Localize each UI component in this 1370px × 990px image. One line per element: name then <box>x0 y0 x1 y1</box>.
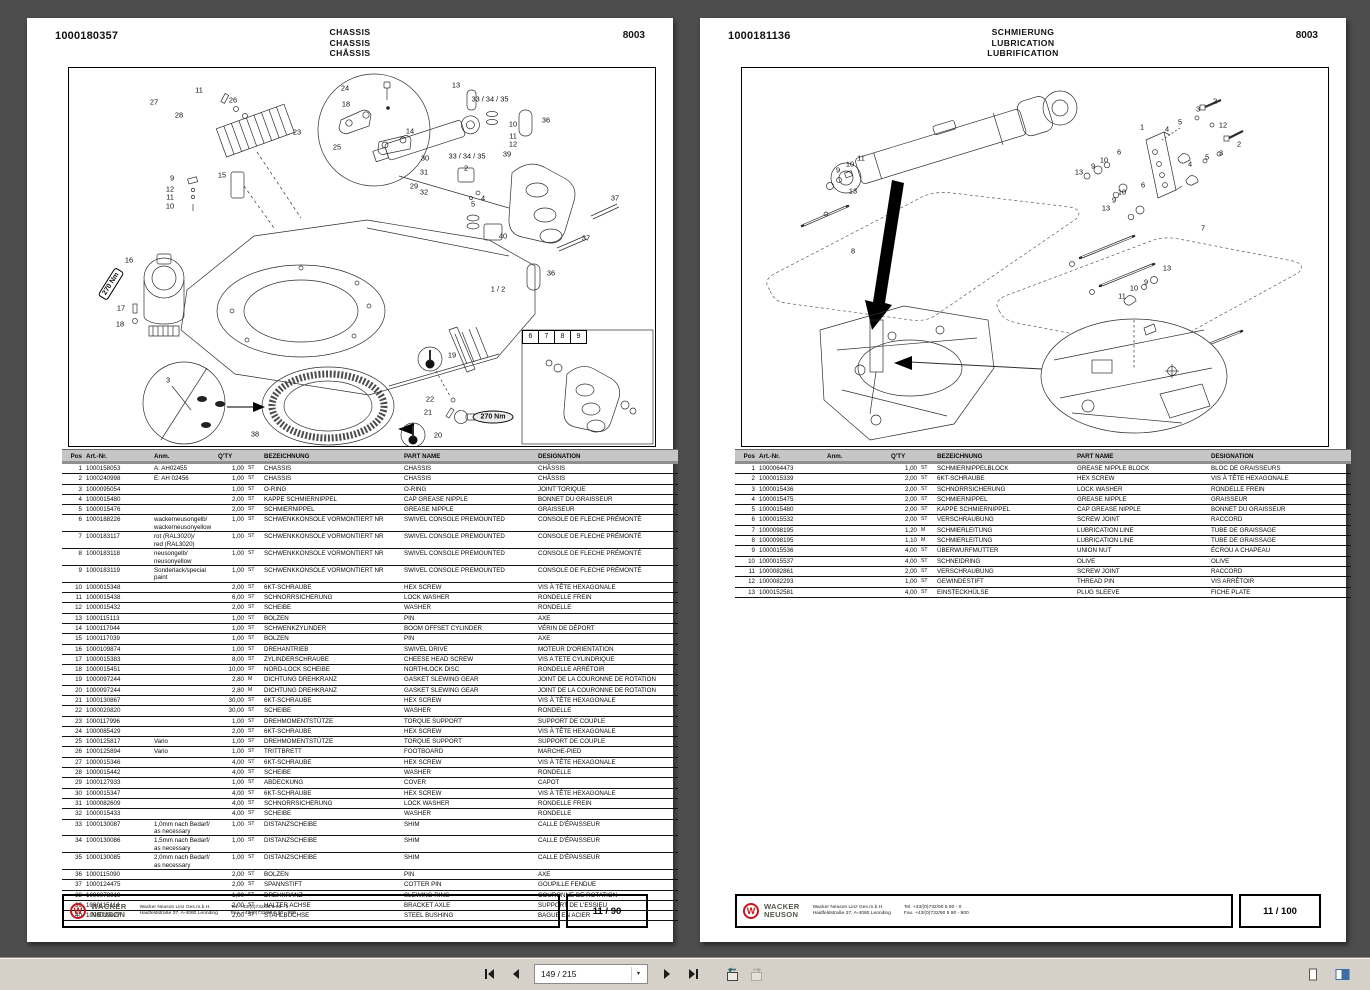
cell-bez: TRITTBRETT <box>262 747 402 755</box>
cell-art: 1000015476 <box>84 505 152 513</box>
cell-part: COVER <box>402 778 536 786</box>
cell-qty: 4,00 <box>216 799 246 807</box>
table-row: 1210000154322,00STSCHEIBEWASHERRONDELLE <box>62 603 678 613</box>
cell-qty: 1,00 <box>216 737 246 745</box>
cell-bez: DREHMOMENTSTÜTZE <box>262 717 402 725</box>
cell-unit: ST <box>919 474 935 482</box>
cell-des: CHÂSSIS <box>536 464 678 472</box>
cell-art: 1000015532 <box>757 515 825 523</box>
table-row: 610000155322,00STVERSCHRAUBUNGSCREW JOIN… <box>735 515 1351 525</box>
cell-unit: ST <box>919 505 935 513</box>
cell-des: OLIVE <box>1209 557 1351 565</box>
cell-asm: rot (RAL3020)/ red (RAL3020) <box>152 532 216 548</box>
cell-des: RONDELLE FREIN <box>536 799 678 807</box>
cell-part: WASHER <box>402 603 536 611</box>
previous-page-button[interactable] <box>504 963 527 986</box>
cell-qty: 4,00 <box>889 546 919 554</box>
cell-art: 1000015339 <box>757 474 825 482</box>
callout-label: 8 <box>851 247 855 254</box>
col-anm: Anm. <box>152 451 216 460</box>
cell-asm <box>152 758 216 759</box>
cell-unit: ST <box>919 464 935 472</box>
table-row: 1010000155374,00STSCHNEIDRINGOLIVEOLIVE <box>735 557 1351 567</box>
cell-pos: 23 <box>62 717 84 725</box>
cell-unit: ST <box>246 737 262 745</box>
page-title: SCHMIERUNG LUBRICATION LUBRIFICATION <box>700 27 1346 59</box>
cell-bez: CHASSIS <box>262 464 402 472</box>
cell-art: 1000015438 <box>84 593 152 601</box>
cell-bez: SPANNSTIFT <box>262 880 402 888</box>
cell-pos: 20 <box>62 686 84 694</box>
cell-unit: ST <box>246 495 262 503</box>
cell-unit: ST <box>246 789 262 797</box>
cell-bez: SCHMIERLEITUNG <box>935 536 1075 544</box>
cell-des: RONDELLE FREIN <box>536 593 678 601</box>
cell-qty: 2,80 <box>216 675 246 683</box>
previous-view-icon <box>723 967 740 982</box>
cell-asm <box>152 645 216 646</box>
cell-part: GREASE NIPPLE BLOCK <box>1075 464 1209 472</box>
cell-art: 1000015348 <box>84 583 152 591</box>
table-row: 1510001170391,00STBOLZENPINAXE <box>62 634 678 644</box>
cell-art: 1000015442 <box>84 768 152 776</box>
cell-part: LUBRICATION LINE <box>1075 526 1209 534</box>
cell-unit: ST <box>246 809 262 817</box>
cell-qty: 2,00 <box>216 880 246 888</box>
cell-pos: 34 <box>62 836 84 844</box>
left-page: 1000180357 CHASSIS CHASSIS CHÂSSIS 8003 <box>27 18 673 942</box>
cell-art: 1000117039 <box>84 634 152 642</box>
callout-label: 7 <box>1201 224 1205 231</box>
cell-bez: NORD-LOCK SCHEIBE <box>262 665 402 673</box>
cell-bez: DISTANZSCHEIBE <box>262 853 402 861</box>
col-pos: Pos <box>735 451 757 460</box>
table-row: 1710000153838,00STZYLINDERSCHRAUBECHEESE… <box>62 655 678 665</box>
table-row: 3710001244752,00STSPANNSTIFTCOTTER PINGO… <box>62 880 678 890</box>
cell-des: CAPOT <box>536 778 678 786</box>
table-row: 3010000153474,00ST6KT-SCHRAUBEHEX SCREWV… <box>62 789 678 799</box>
cell-qty: 2,00 <box>216 583 246 591</box>
cell-des: RONDELLE <box>536 768 678 776</box>
cell-pos: 11 <box>735 567 757 575</box>
table-row: 810000981951,10MSCHMIERLEITUNGLUBRICATIO… <box>735 536 1351 546</box>
cell-bez: ZYLINDERSCHRAUBE <box>262 655 402 663</box>
cell-part: SWIVEL CONSOLE PREMOUNTED <box>402 566 536 574</box>
cell-bez: SCHWENKKONSOLE VORMONTIERT NR <box>262 515 402 523</box>
cell-asm <box>152 789 216 790</box>
callout-label: 10 <box>1118 188 1126 195</box>
cell-pos: 2 <box>735 474 757 482</box>
cell-art: 1000015537 <box>757 557 825 565</box>
cell-pos: 24 <box>62 727 84 735</box>
cell-part: HEX SCREW <box>402 696 536 704</box>
cell-des: RONDELLE ARRÉTOIR <box>536 665 678 673</box>
cell-qty: 1,00 <box>216 464 246 472</box>
cell-des: BONNET DU GRAISSEUR <box>1209 505 1351 513</box>
cell-unit: M <box>919 536 935 544</box>
cell-bez: KAPPE SCHMIERNIPPEL <box>262 495 402 503</box>
cell-qty: 1,00 <box>889 464 919 472</box>
cell-qty: 1,00 <box>216 717 246 725</box>
company-address: Wacker Neuson Linz Ges.m.b.H. Haidfeldst… <box>813 905 891 917</box>
cell-bez: GEWINDESTIFT <box>935 577 1075 585</box>
callout-label: 21 <box>424 408 432 415</box>
callout-label: 9 <box>1144 278 1148 285</box>
cell-bez: VERSCHRAUBUNG <box>935 567 1075 575</box>
callout-label: 3 <box>1219 149 1223 156</box>
page-navigation-group: 149 / 215 ▼ <box>478 958 769 990</box>
page-dropdown-arrow-icon[interactable]: ▼ <box>631 967 645 981</box>
cell-art: 1000064473 <box>757 464 825 472</box>
previous-view-button[interactable] <box>720 963 743 986</box>
cell-des: CALLE D'ÉPAISSEUR <box>536 853 678 861</box>
cell-asm: wackerneusongelb/ wackerneusonyellow <box>152 515 216 531</box>
cell-art: 1000015451 <box>84 665 152 673</box>
cell-pos: 7 <box>735 526 757 534</box>
cell-bez: SCHEIBE <box>262 768 402 776</box>
callout-label: 9 <box>570 330 587 344</box>
cell-art: 1000109874 <box>84 645 152 653</box>
next-page-button[interactable] <box>655 963 678 986</box>
cell-art: 1000152581 <box>757 588 825 596</box>
page-number: 11 / 100 <box>1239 894 1321 928</box>
cell-art: 1000115090 <box>84 870 152 878</box>
table-row: 2410000854292,00ST6KT-SCHRAUBEHEX SCREWV… <box>62 727 678 737</box>
col-part: PART NAME <box>402 451 536 460</box>
cell-part: LOCK WASHER <box>402 799 536 807</box>
cell-part: CHEESE HEAD SCREW <box>402 655 536 663</box>
cell-qty: 30,00 <box>216 696 246 704</box>
cell-part: HEX SCREW <box>402 758 536 766</box>
cell-unit: ST <box>246 727 262 735</box>
wacker-neuson-logo-icon: W <box>70 903 86 919</box>
table-row: 3110000826094,00STSCHNORRSICHERUNGLOCK W… <box>62 799 678 809</box>
cell-asm <box>825 536 889 537</box>
cell-asm: E: AH 02456 <box>152 474 216 482</box>
cell-unit: M <box>919 526 935 534</box>
cell-art: 1000130867 <box>84 696 152 704</box>
cell-des: CONSOLE DE FLECHE PRÉMONTÉ <box>536 532 678 540</box>
callout-label: 4 <box>1165 125 1169 132</box>
cell-qty: 2,00 <box>889 474 919 482</box>
cell-art: 1000183118 <box>84 549 152 557</box>
col-anm: Anm. <box>825 451 889 460</box>
cell-art: 1000130085 <box>84 853 152 861</box>
cell-bez: 6KT-SCHRAUBE <box>262 789 402 797</box>
cell-part: SHIM <box>402 853 536 861</box>
cell-unit: ST <box>246 820 262 828</box>
title-line-fr: CHÂSSIS <box>27 48 673 59</box>
table-row: 1210000822931,00STGEWINDESTIFTTHREAD PIN… <box>735 577 1351 587</box>
callout-label: 7 <box>538 330 555 344</box>
callout-label: 6 <box>1117 148 1121 155</box>
cell-pos: 5 <box>62 505 84 513</box>
table-row: 1110000828612,00STVERSCHRAUBUNGSCREW JOI… <box>735 567 1351 577</box>
cell-asm <box>152 880 216 881</box>
exploded-view-drawing <box>742 68 1328 446</box>
table-header-row: Pos Art.-Nr. Anm. Q'TY BEZEICHNUNG PART … <box>62 449 678 464</box>
cell-part: SCREW JOINT <box>1075 567 1209 575</box>
table-body: 11000158053A: AH024551,00STCHASSISCHASSI… <box>62 464 678 921</box>
cell-unit: ST <box>246 474 262 482</box>
page-footer: W WACKER NEUSON Wacker Neuson Linz Ges.m… <box>735 894 1321 928</box>
cell-des: TUBE DE GRAISSAGE <box>1209 526 1351 534</box>
cell-des: RONDELLE <box>536 706 678 714</box>
table-row: 2710000153464,00ST6KT-SCHRAUBEHEX SCREWV… <box>62 758 678 768</box>
cell-pos: 35 <box>62 853 84 861</box>
cell-art: 1000117044 <box>84 624 152 632</box>
parts-table: Pos Art.-Nr. Anm. Q'TY BEZEICHNUNG PART … <box>735 449 1351 598</box>
cell-part: SWIVEL CONSOLE PREMOUNTED <box>402 532 536 540</box>
cell-pos: 1 <box>62 464 84 472</box>
cell-qty: 1,10 <box>889 536 919 544</box>
cell-part: SCREW JOINT <box>1075 515 1209 523</box>
callout-label: 10 <box>509 120 517 127</box>
cell-part: HEX SCREW <box>1075 474 1209 482</box>
cell-pos: 10 <box>62 583 84 591</box>
cell-bez: SCHWENKKONSOLE VORMONTIERT NR <box>262 549 402 557</box>
cell-des: SUPPORT DE COUPLE <box>536 717 678 725</box>
cell-unit: ST <box>919 495 935 503</box>
callout-label: 19 <box>448 351 456 358</box>
cell-des: JOINT DE LA COURONNE DE ROTATION <box>536 686 678 694</box>
cell-des: AXE <box>536 870 678 878</box>
cell-part: SHIM <box>402 836 536 844</box>
table-row: 1110000154386,00STSCHNORRSICHERUNGLOCK W… <box>62 593 678 603</box>
cell-des: VIS À TÊTE HEXAGONALE <box>536 789 678 797</box>
cell-art: 1000015480 <box>84 495 152 503</box>
cell-des: VIS À TÊTE HEXAGONALE <box>536 696 678 704</box>
cell-pos: 10 <box>735 557 757 565</box>
cell-part: LOCK WASHER <box>1075 485 1209 493</box>
section-code: 8003 <box>623 30 645 41</box>
cell-pos: 16 <box>62 645 84 653</box>
cell-part: GASKET SLEWING GEAR <box>402 686 536 694</box>
pdf-toolbar: 149 / 215 ▼ <box>0 957 1370 990</box>
company-box: W WACKER NEUSON Wacker Neuson Linz Ges.m… <box>62 894 560 928</box>
cell-asm: 1,5mm nach Bedarf/ as necessary <box>152 836 216 852</box>
table-row: 11000158053A: AH024551,00STCHASSISCHASSI… <box>62 464 678 474</box>
table-row: 3410001300861,5mm nach Bedarf/ as necess… <box>62 836 678 853</box>
cell-asm <box>152 593 216 594</box>
cell-asm: A: AH02455 <box>152 464 216 472</box>
cell-bez: DREHANTRIEB <box>262 645 402 653</box>
table-row: 1910000972442,80MDICHTUNG DREHKRANZGASKE… <box>62 675 678 685</box>
cell-part: WASHER <box>402 809 536 817</box>
cell-asm <box>152 727 216 728</box>
chassis-exploded-diagram: 27112826241823251333 / 34 / 35143033 / 3… <box>68 67 656 447</box>
cell-art: 1000098195 <box>757 536 825 544</box>
cell-des: VIS À TÊTE HEXAGONALE <box>536 758 678 766</box>
callout-label: 13 <box>849 187 857 194</box>
cell-des: VÉRIN DE DÉPORT <box>536 624 678 632</box>
cell-pos: 12 <box>62 603 84 611</box>
parts-table: Pos Art.-Nr. Anm. Q'TY BEZEICHNUNG PART … <box>62 449 678 921</box>
cell-qty: 1,00 <box>216 820 246 828</box>
callout-label: 33 / 34 / 35 <box>472 95 509 102</box>
cell-des: JOINT TORIQUE <box>536 485 678 493</box>
cell-bez: CHASSIS <box>262 474 402 482</box>
cell-pos: 32 <box>62 809 84 817</box>
cell-part: PLUG SLEEVE <box>1075 588 1209 596</box>
callout-label: 31 <box>420 168 428 175</box>
cell-bez: SCHMIERNIPPEL <box>262 505 402 513</box>
callout-label: 33 / 34 / 35 <box>449 152 486 159</box>
callout-label: 3 <box>166 376 170 383</box>
cell-part: TORQUE SUPPORT <box>402 717 536 725</box>
page-footer: W WACKER NEUSON Wacker Neuson Linz Ges.m… <box>62 894 648 928</box>
cell-qty: 1,00 <box>216 634 246 642</box>
table-row: 210000153392,00ST6KT-SCHRAUBEHEX SCREWVI… <box>735 474 1351 484</box>
cell-art: 1000015347 <box>84 789 152 797</box>
cell-unit: ST <box>246 758 262 766</box>
cell-pos: 19 <box>62 675 84 683</box>
cell-des: CALLE D'ÉPAISSEUR <box>536 836 678 844</box>
cell-pos: 8 <box>62 549 84 557</box>
cell-part: PIN <box>402 870 536 878</box>
cell-unit: ST <box>919 557 935 565</box>
cell-asm <box>152 495 216 496</box>
cell-part: GREASE NIPPLE <box>402 505 536 513</box>
cell-unit: ST <box>246 566 262 574</box>
cell-asm <box>152 778 216 779</box>
cell-qty: 4,00 <box>216 768 246 776</box>
cell-part: SWIVEL CONSOLE PREMOUNTED <box>402 515 536 523</box>
cell-part: WASHER <box>402 768 536 776</box>
cell-pos: 28 <box>62 768 84 776</box>
cell-bez: SCHNORRSICHERUNG <box>935 485 1075 493</box>
cell-qty: 4,00 <box>216 789 246 797</box>
table-row: 410000154802,00STKAPPE SCHMIERNIPPELCAP … <box>62 495 678 505</box>
cell-pos: 2 <box>62 474 84 482</box>
cell-art: 1000095054 <box>84 485 152 493</box>
cell-pos: 1 <box>735 464 757 472</box>
cell-des: CONSOLE DE FLECHE PRÉMONTÉ <box>536 549 678 557</box>
first-page-button[interactable] <box>478 963 501 986</box>
cell-unit: ST <box>246 717 262 725</box>
callout-label: 8 <box>554 330 571 344</box>
single-page-view-button[interactable] <box>1301 963 1324 986</box>
cell-art: 1000125894 <box>84 747 152 755</box>
table-row: 1410001170441,00STSCHWENKZYLINDERBOOM OF… <box>62 624 678 634</box>
table-row: 2010000972442,80MDICHTUNG DREHKRANZGASKE… <box>62 686 678 696</box>
cell-qty: 4,00 <box>889 557 919 565</box>
cell-pos: 9 <box>62 566 84 574</box>
callout-label: 9 <box>1112 196 1116 203</box>
cell-qty: 2,00 <box>216 495 246 503</box>
cell-pos: 25 <box>62 737 84 745</box>
col-bez: BEZEICHNUNG <box>935 451 1075 460</box>
cell-asm <box>825 464 889 465</box>
cell-bez: SCHWENKZYLINDER <box>262 624 402 632</box>
cell-qty: 8,00 <box>216 655 246 663</box>
callout-label: 270 Nm <box>473 411 514 424</box>
cell-art: 1000117996 <box>84 717 152 725</box>
cell-bez: DISTANZSCHEIBE <box>262 836 402 844</box>
cell-part: CAP GREASE NIPPLE <box>1075 505 1209 513</box>
callout-label: 10 <box>166 202 174 209</box>
table-row: 410000154752,00STSCHMIERNIPPELGREASE NIP… <box>735 495 1351 505</box>
title-line-de: SCHMIERUNG <box>700 27 1346 38</box>
cell-asm: Vario <box>152 737 216 745</box>
cell-qty: 1,00 <box>216 614 246 622</box>
cell-bez: DICHTUNG DREHKRANZ <box>262 675 402 683</box>
table-row: 510000154802,00STKAPPE SCHMIERNIPPELCAP … <box>735 505 1351 515</box>
cell-asm: 2,0mm nach Bedarf/ as necessary <box>152 853 216 869</box>
table-row: 3510001300852,0mm nach Bedarf/ as necess… <box>62 853 678 870</box>
cell-asm <box>152 603 216 604</box>
cell-art: 1000082609 <box>84 799 152 807</box>
cell-unit: ST <box>246 836 262 844</box>
cell-des: GRAISSEUR <box>536 505 678 513</box>
callout-label: 9 <box>170 174 174 181</box>
cell-art: 1000125817 <box>84 737 152 745</box>
cell-asm <box>152 655 216 656</box>
cell-asm <box>152 891 216 892</box>
last-page-button[interactable] <box>681 963 704 986</box>
cell-bez: 6KT-SCHRAUBE <box>262 583 402 591</box>
cell-qty: 1,20 <box>889 526 919 534</box>
cell-bez: SCHEIBE <box>262 603 402 611</box>
table-row: 2310001179961,00STDREHMOMENTSTÜTZETORQUE… <box>62 717 678 727</box>
cell-des: VIS A TETE CYLINDRIQUE <box>536 655 678 663</box>
company-box: W WACKER NEUSON Wacker Neuson Linz Ges.m… <box>735 894 1233 928</box>
callout-label: 10 <box>1100 156 1108 163</box>
facing-pages-view-button[interactable] <box>1331 963 1354 986</box>
table-row: 22100002082030,00STSCHEIBEWASHERRONDELLE <box>62 706 678 716</box>
title-line-en: CHASSIS <box>27 38 673 49</box>
cell-des: CONSOLE DE FLECHE PRÉMONTÉ <box>536 515 678 523</box>
cell-part: GASKET SLEWING GEAR <box>402 675 536 683</box>
next-view-button[interactable] <box>746 963 769 986</box>
cell-unit: ST <box>919 546 935 554</box>
cell-part: OLIVE <box>1075 557 1209 565</box>
page-number-value: 149 / 215 <box>541 969 576 979</box>
next-page-icon <box>660 967 674 981</box>
cell-qty: 1,00 <box>216 515 246 523</box>
cell-part: CHASSIS <box>402 474 536 482</box>
col-qty: Q'TY <box>889 451 935 460</box>
cell-bez: SCHMIERLEITUNG <box>935 526 1075 534</box>
callout-label: 22 <box>426 395 434 402</box>
cell-part: CHASSIS <box>402 464 536 472</box>
callout-label: 13 <box>452 81 460 88</box>
cell-art: 1000082861 <box>757 567 825 575</box>
col-des: DESIGNATION <box>1209 451 1351 460</box>
cell-part: CAP GREASE NIPPLE <box>402 495 536 503</box>
cell-qty: 30,00 <box>216 706 246 714</box>
cell-qty: 1,00 <box>216 747 246 755</box>
callout-label: 4 <box>481 194 485 201</box>
cell-qty: 4,00 <box>216 758 246 766</box>
cell-pos: 6 <box>735 515 757 523</box>
cell-des: RONDELLE <box>536 809 678 817</box>
page-number-field[interactable]: 149 / 215 ▼ <box>534 964 648 984</box>
cell-des: ÉCROU A CHAPEAU <box>1209 546 1351 554</box>
cell-des: CHÂSSIS <box>536 474 678 482</box>
col-art: Art.-Nr. <box>757 451 825 460</box>
cell-unit: ST <box>246 634 262 642</box>
col-art: Art.-Nr. <box>84 451 152 460</box>
section-code: 8003 <box>1296 30 1318 41</box>
callout-label: 2 <box>464 164 468 171</box>
cell-asm <box>152 485 216 486</box>
cell-qty: 1,00 <box>216 836 246 844</box>
callout-label: 26 <box>229 96 237 103</box>
cell-asm <box>825 515 889 516</box>
cell-asm: neusongelb/ neusonyellow <box>152 549 216 565</box>
callout-label: 11 <box>857 154 865 161</box>
